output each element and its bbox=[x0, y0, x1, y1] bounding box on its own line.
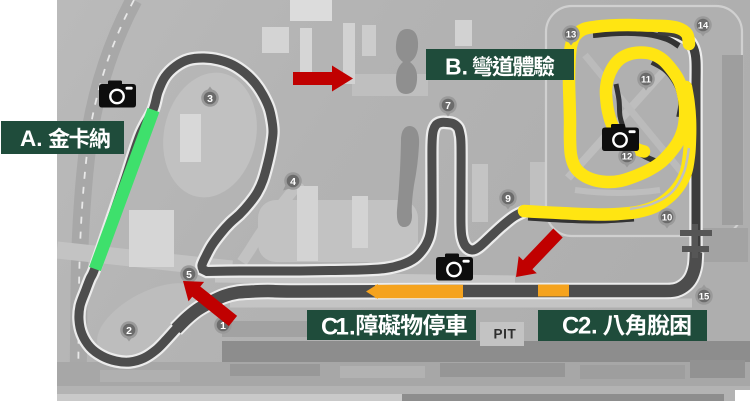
svg-text:2: 2 bbox=[126, 325, 132, 337]
svg-text:15: 15 bbox=[699, 291, 710, 302]
svg-text:C2.: C2. bbox=[562, 313, 598, 340]
svg-text:10: 10 bbox=[662, 212, 673, 223]
svg-text:5: 5 bbox=[186, 269, 192, 281]
svg-text:B.: B. bbox=[445, 54, 468, 80]
svg-text:4: 4 bbox=[290, 176, 296, 188]
svg-text:12: 12 bbox=[622, 151, 633, 162]
svg-text:3: 3 bbox=[207, 93, 213, 105]
svg-text:PIT: PIT bbox=[494, 326, 517, 341]
svg-text:11: 11 bbox=[641, 74, 652, 85]
svg-text:9: 9 bbox=[505, 193, 511, 205]
svg-text:A.: A. bbox=[20, 126, 43, 151]
svg-text:C1.: C1. bbox=[321, 314, 356, 341]
svg-text:14: 14 bbox=[698, 20, 709, 31]
svg-text:7: 7 bbox=[445, 100, 451, 112]
svg-text:13: 13 bbox=[566, 29, 577, 40]
